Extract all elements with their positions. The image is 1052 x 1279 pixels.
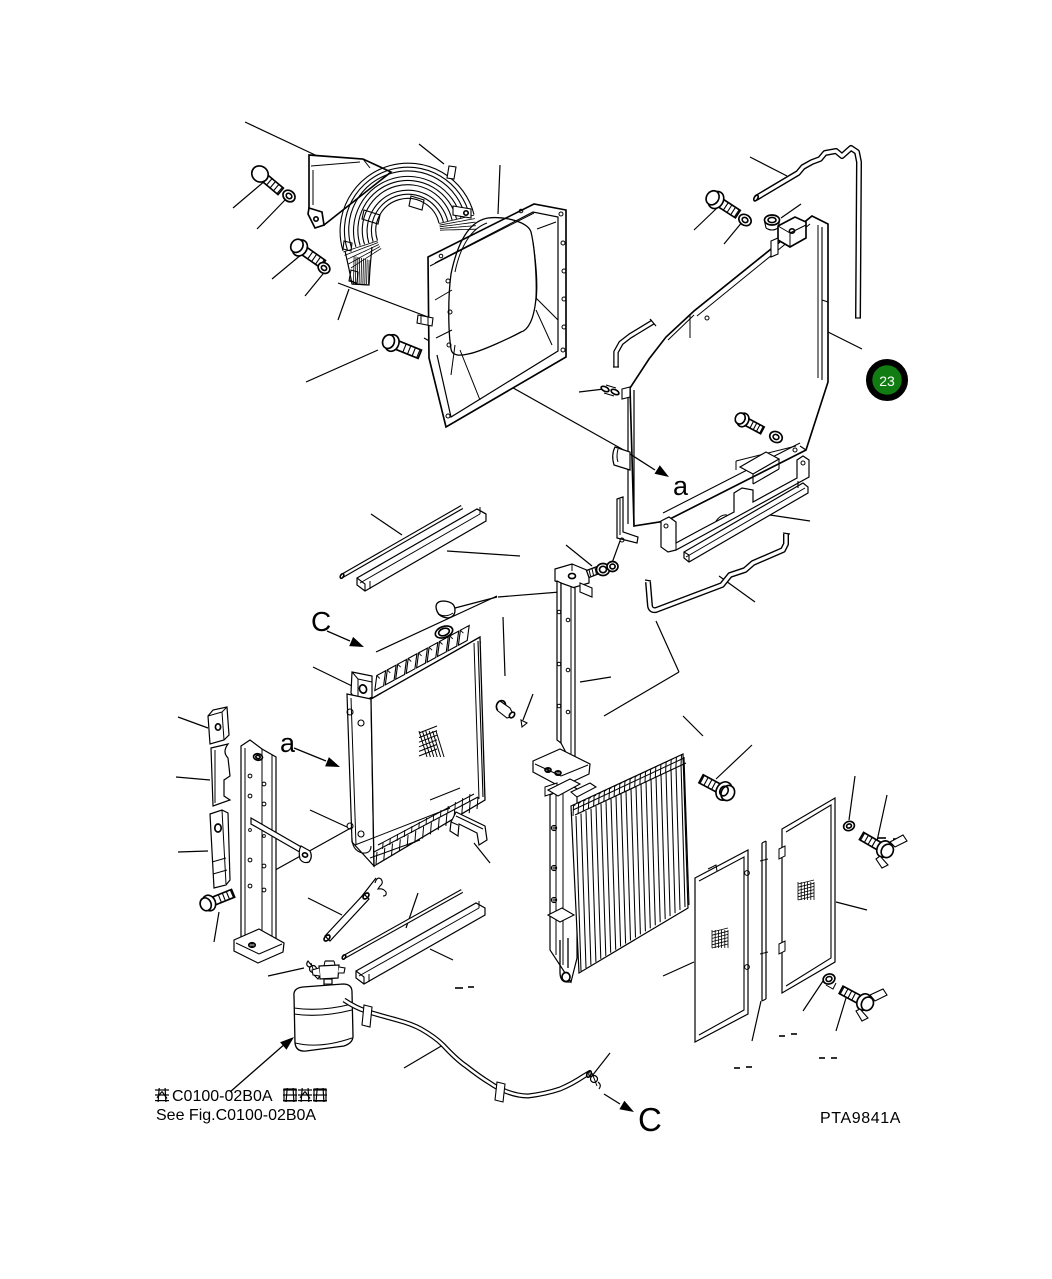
svg-text:C0100-02B0A: C0100-02B0A: [172, 1088, 273, 1105]
svg-text:C: C: [638, 1101, 662, 1138]
svg-text:C: C: [311, 606, 331, 637]
svg-text:a: a: [280, 728, 296, 758]
svg-text:23: 23: [879, 373, 895, 389]
svg-text:See Fig.C0100-02B0A: See Fig.C0100-02B0A: [156, 1107, 316, 1124]
svg-text:PTA9841A: PTA9841A: [820, 1110, 901, 1127]
svg-text:a: a: [673, 471, 689, 501]
